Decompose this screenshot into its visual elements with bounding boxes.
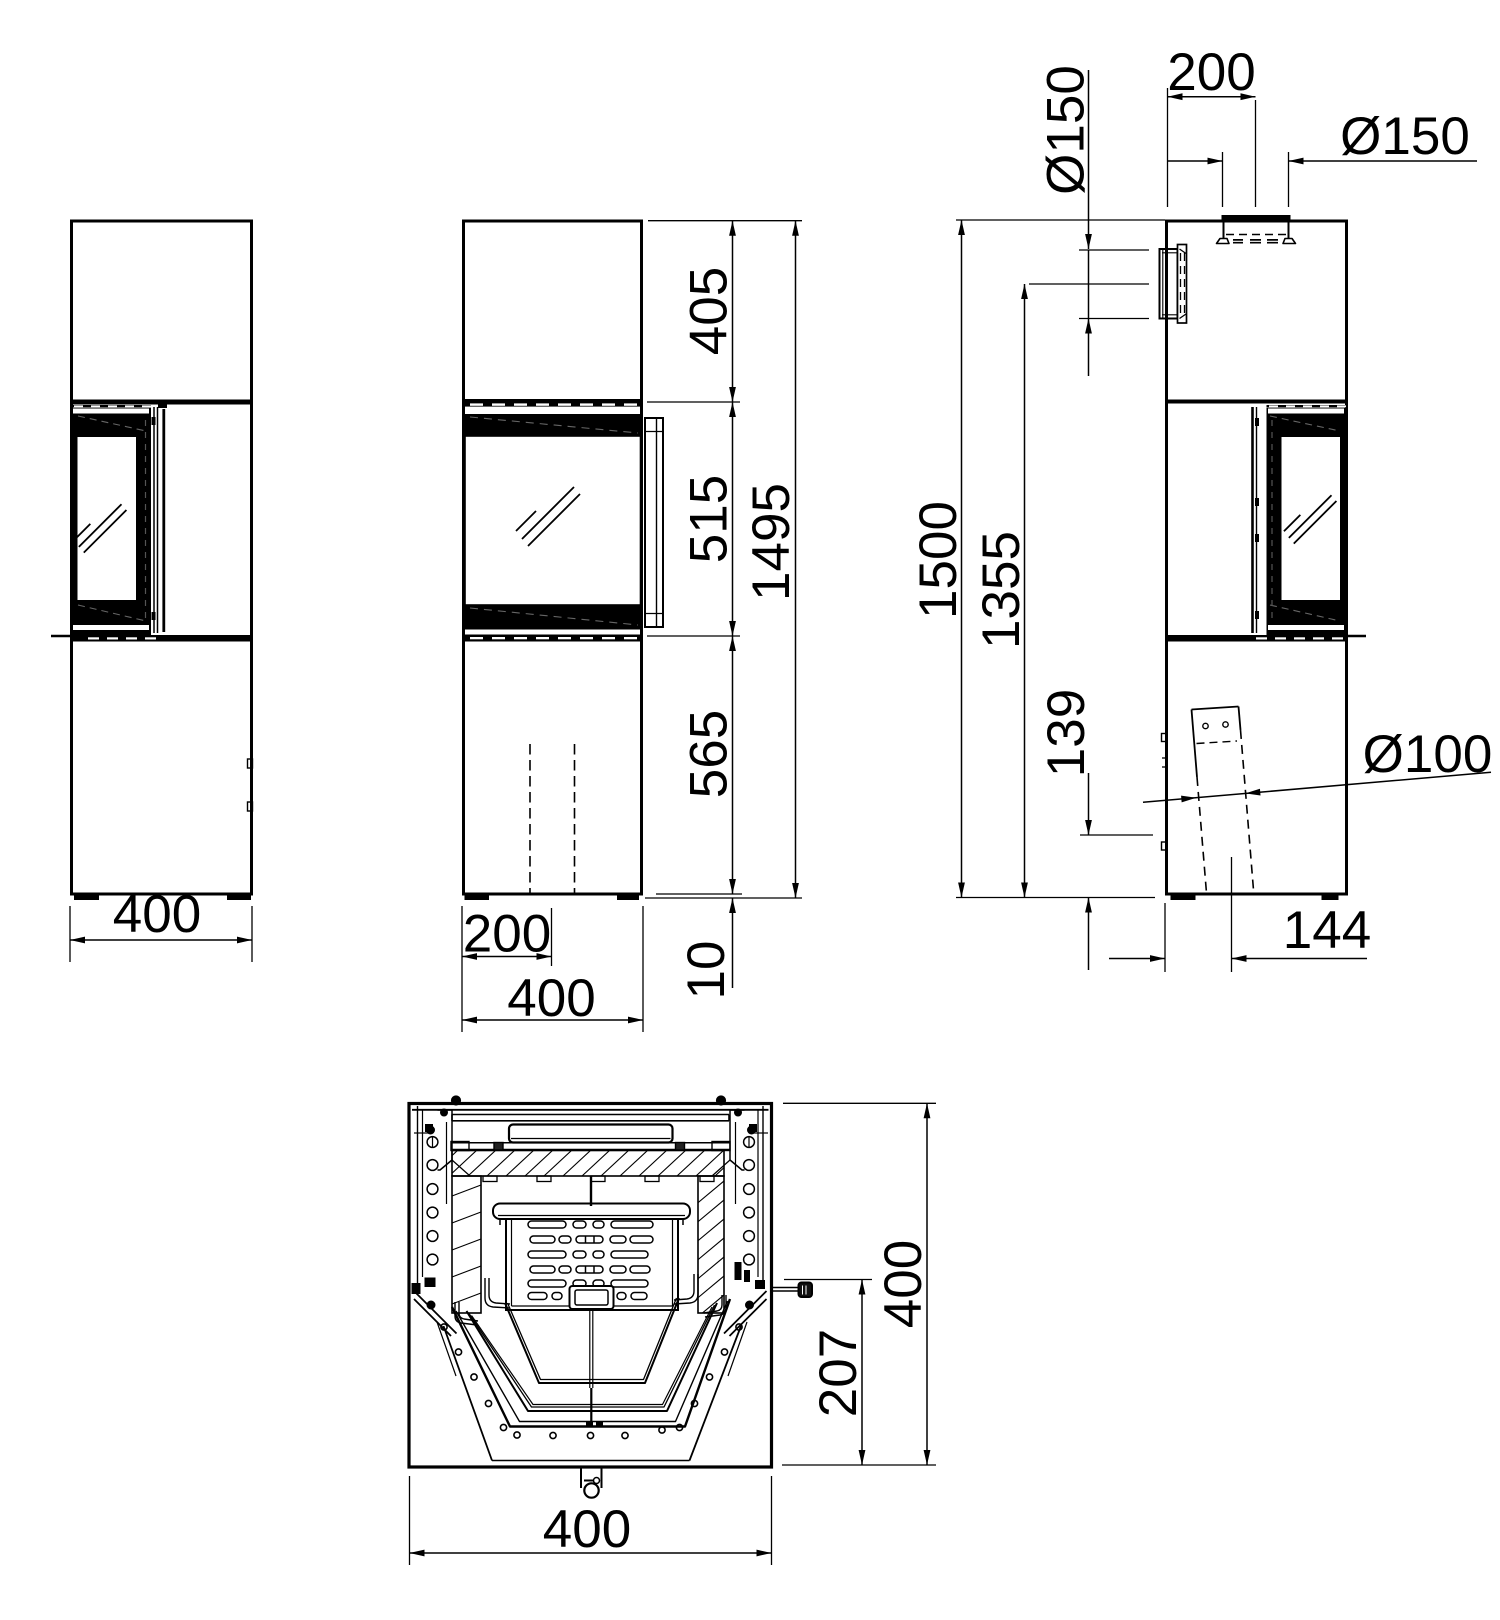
svg-text:Ø100: Ø100 xyxy=(1363,725,1493,784)
svg-text:207: 207 xyxy=(809,1329,868,1417)
svg-text:565: 565 xyxy=(680,710,739,798)
svg-text:Ø150: Ø150 xyxy=(1037,65,1096,195)
svg-text:Ø150: Ø150 xyxy=(1340,107,1470,166)
svg-text:10: 10 xyxy=(677,941,736,1000)
svg-text:1355: 1355 xyxy=(972,531,1031,649)
svg-text:144: 144 xyxy=(1283,901,1371,960)
svg-text:400: 400 xyxy=(507,969,595,1028)
svg-text:139: 139 xyxy=(1037,689,1096,777)
svg-text:200: 200 xyxy=(1167,43,1255,102)
svg-text:1500: 1500 xyxy=(909,501,968,619)
svg-text:405: 405 xyxy=(680,267,739,355)
svg-text:400: 400 xyxy=(543,1500,631,1559)
svg-text:1495: 1495 xyxy=(742,483,801,601)
svg-text:200: 200 xyxy=(463,905,551,964)
svg-text:400: 400 xyxy=(874,1240,933,1328)
svg-text:400: 400 xyxy=(113,885,201,944)
svg-text:515: 515 xyxy=(680,475,739,563)
